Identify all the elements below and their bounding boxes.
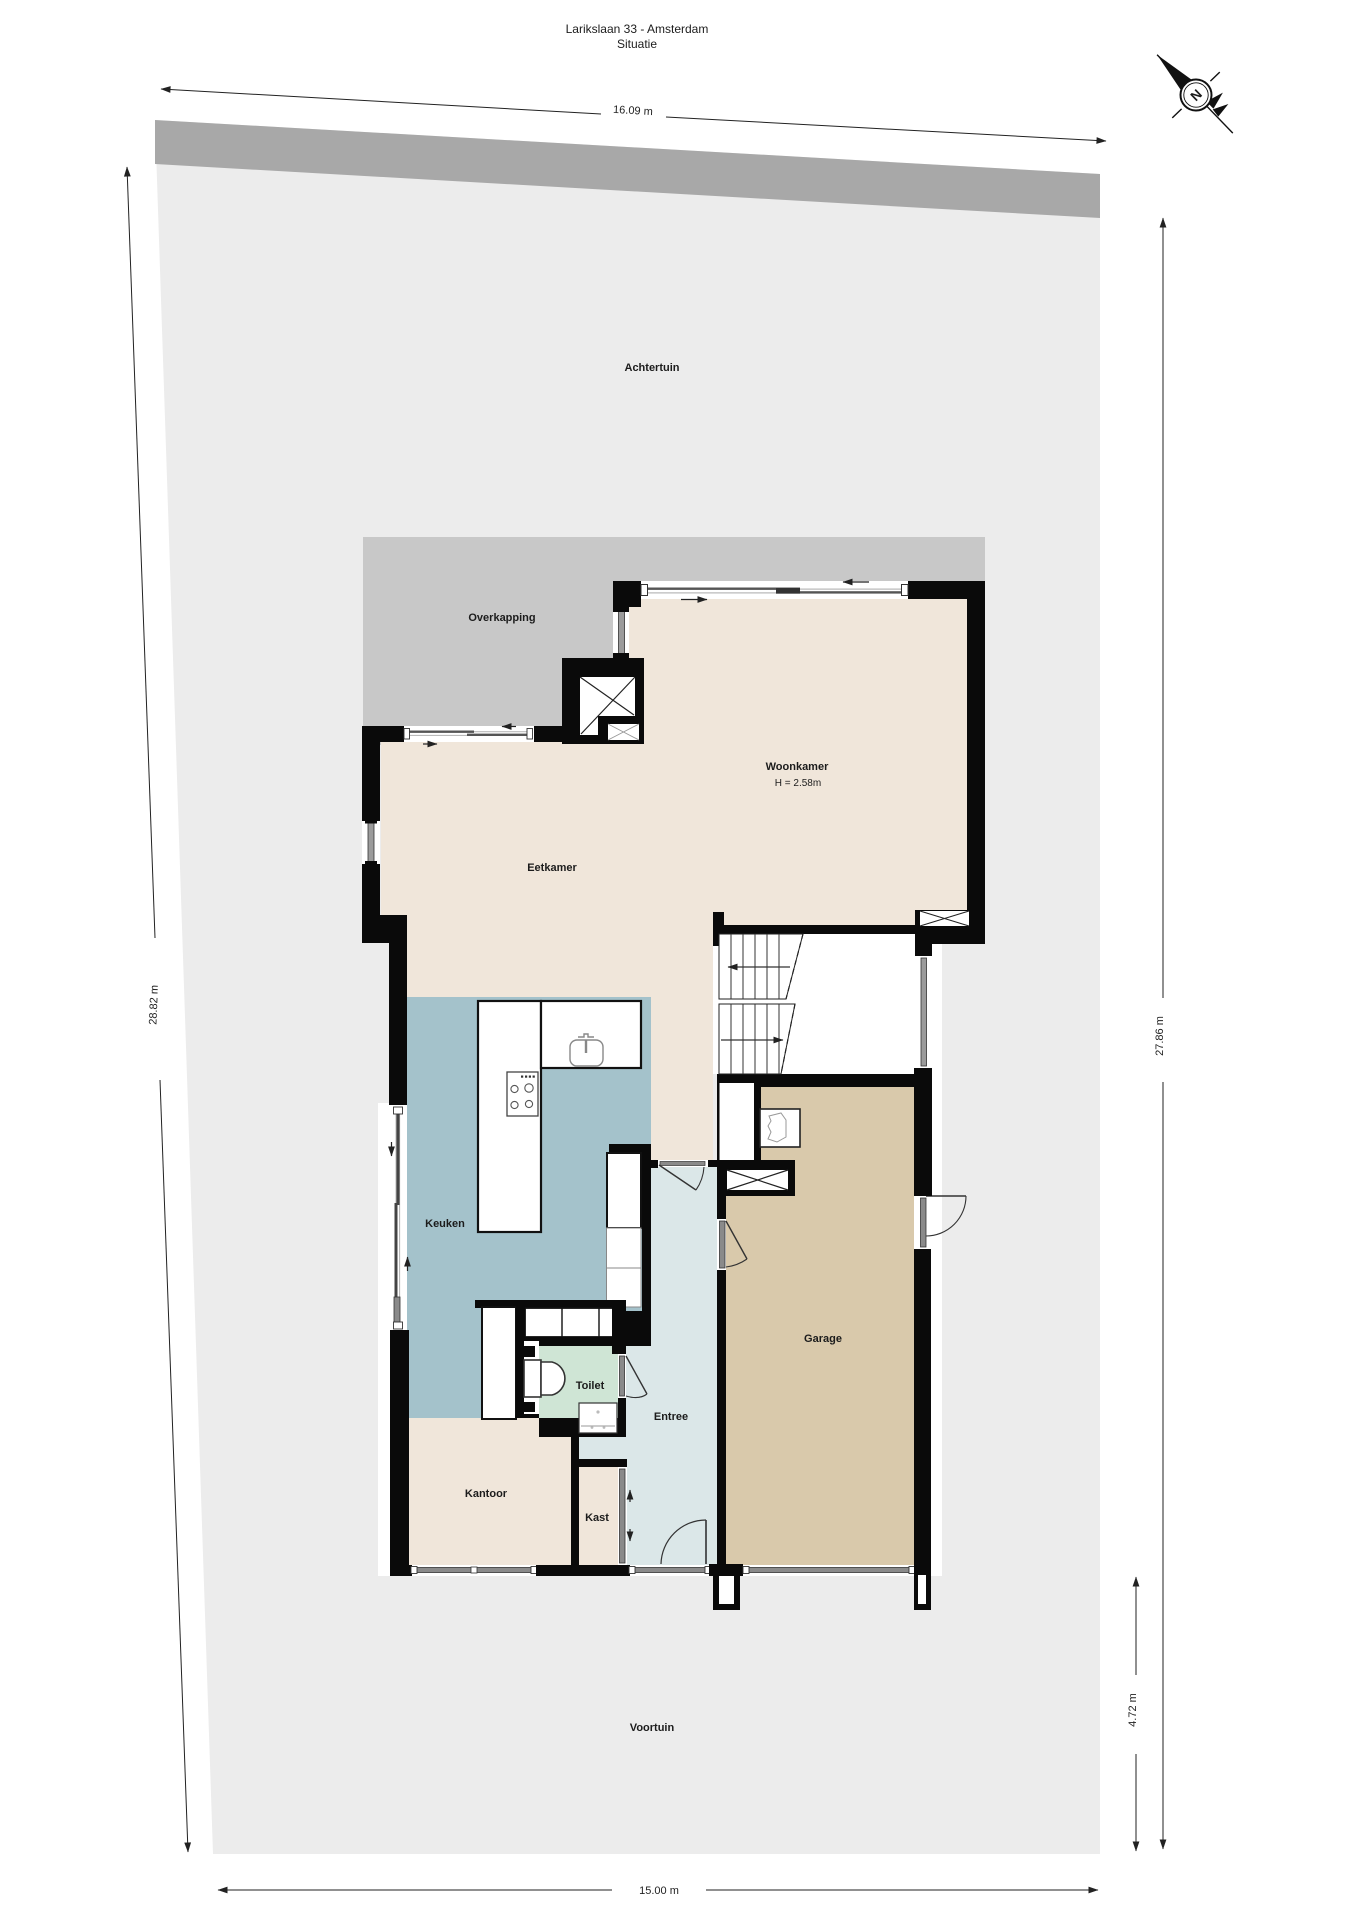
svg-text:27.86 m: 27.86 m xyxy=(1154,1016,1166,1056)
svg-text:Woonkamer: Woonkamer xyxy=(766,761,829,773)
svg-text:Toilet: Toilet xyxy=(576,1380,605,1392)
svg-text:28.82 m: 28.82 m xyxy=(147,985,160,1025)
svg-text:Kantoor: Kantoor xyxy=(465,1488,508,1500)
svg-text:Voortuin: Voortuin xyxy=(630,1722,675,1734)
svg-text:15.00 m: 15.00 m xyxy=(639,1885,679,1897)
svg-text:4.72 m: 4.72 m xyxy=(1127,1693,1139,1727)
svg-text:16.09 m: 16.09 m xyxy=(613,104,653,118)
svg-text:Entree: Entree xyxy=(654,1411,688,1423)
svg-text:Achtertuin: Achtertuin xyxy=(625,362,680,374)
svg-text:Overkapping: Overkapping xyxy=(468,612,535,624)
svg-text:Garage: Garage xyxy=(804,1333,842,1345)
svg-text:Situatie: Situatie xyxy=(617,37,657,51)
svg-text:Kast: Kast xyxy=(585,1512,609,1524)
svg-text:Keuken: Keuken xyxy=(425,1218,465,1230)
svg-text:Eetkamer: Eetkamer xyxy=(527,862,577,874)
svg-text:Larikslaan 33 - Amsterdam: Larikslaan 33 - Amsterdam xyxy=(566,22,709,36)
svg-text:H = 2.58m: H = 2.58m xyxy=(775,778,821,789)
